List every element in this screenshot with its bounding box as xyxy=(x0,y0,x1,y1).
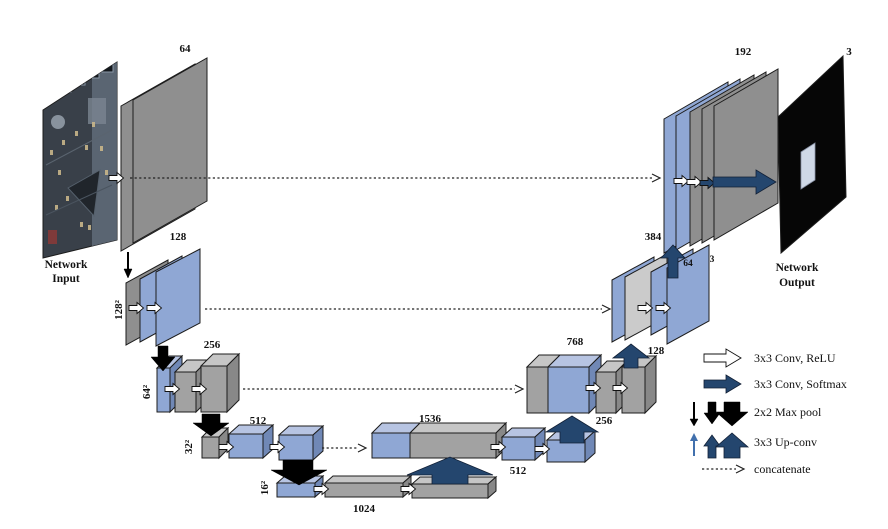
channel-label-dec-128: 128 xyxy=(648,345,665,357)
channel-label-512: 512 xyxy=(250,415,267,427)
legend-upconv-arrow-large xyxy=(716,433,748,458)
feature-box-gray xyxy=(325,483,403,497)
feature-box-gray xyxy=(202,437,219,458)
skip-arrowhead xyxy=(515,385,523,393)
feature-plane-gray xyxy=(133,58,207,243)
resolution-label-32sq: 32² xyxy=(183,439,195,454)
channel-label-192: 192 xyxy=(735,46,752,58)
feature-box-gray xyxy=(412,484,488,498)
channel-label-384: 384 xyxy=(645,231,662,243)
encoder-level1-feature-maps: 64 xyxy=(121,43,207,251)
concat-box-blue xyxy=(548,367,589,413)
feature-box-blue xyxy=(277,483,315,497)
channel-label-1536: 1536 xyxy=(419,413,442,425)
skip-arrowhead xyxy=(358,444,366,452)
legend-upconv-label: 3x3 Up-conv xyxy=(754,435,817,449)
legend-maxpool-arrow-large xyxy=(716,402,748,426)
channel-label-dec-3: 3 xyxy=(710,255,715,265)
concat-box-gray xyxy=(527,367,548,413)
channel-label-1024: 1024 xyxy=(353,503,376,515)
resolution-label-128sq: 128² xyxy=(113,299,125,320)
maxpool-arrowhead xyxy=(124,269,132,278)
pcb-connector xyxy=(74,73,85,85)
channel-label-64: 64 xyxy=(180,43,192,55)
legend-conv-relu-label: 3x3 Conv, ReLU xyxy=(754,351,836,365)
resolution-label-64sq: 64² xyxy=(141,384,153,399)
pcb-connector xyxy=(88,66,99,78)
legend-maxpool-arrowhead xyxy=(690,419,698,426)
output-channel-label: 3 xyxy=(846,46,852,58)
unet-architecture-figure: Network Input 64 128 128² 256 64² xyxy=(0,0,888,529)
channel-label-dec-512: 512 xyxy=(510,465,527,477)
pcb-red-component xyxy=(48,230,57,244)
channel-label-128: 128 xyxy=(170,231,187,243)
network-output-image: 3 Network Output xyxy=(776,46,853,289)
legend-conv-relu-arrow xyxy=(704,349,741,367)
skip-arrowhead xyxy=(652,174,660,182)
feature-box-gray xyxy=(596,372,616,413)
legend-conv-softmax-label: 3x3 Conv, Softmax xyxy=(754,377,847,391)
resolution-label-16sq: 16² xyxy=(259,480,271,495)
decoder-level1-feature-maps: 192 xyxy=(664,46,778,253)
unet-architecture-diagram: Network Input 64 128 128² 256 64² xyxy=(0,0,888,529)
pcb-capacitor xyxy=(51,115,65,129)
output-caption-line2: Output xyxy=(779,277,815,289)
input-caption-line2: Input xyxy=(52,273,80,285)
feature-box-blue xyxy=(502,437,535,460)
legend-concatenate-arrowhead xyxy=(736,465,744,473)
legend-maxpool-label: 2x2 Max pool xyxy=(754,405,822,419)
legend-concatenate-label: concatenate xyxy=(754,462,811,476)
feature-box-gray xyxy=(175,372,196,412)
channel-label-768: 768 xyxy=(567,336,584,348)
concat-box-gray xyxy=(410,433,496,458)
legend: 3x3 Conv, ReLU 3x3 Conv, Softmax 2x2 Max… xyxy=(690,349,847,476)
encoder-level3-feature-maps: 256 64² xyxy=(141,339,239,412)
concat-box-blue xyxy=(372,433,410,458)
box-top xyxy=(325,476,411,483)
channel-label-dec-256: 256 xyxy=(596,415,613,427)
feature-box-blue xyxy=(229,434,263,458)
pcb-light-region xyxy=(92,62,117,252)
input-caption-line1: Network xyxy=(45,259,88,271)
network-input-image: Network Input xyxy=(43,60,117,285)
pcb-connector xyxy=(60,80,71,92)
output-caption-line1: Network xyxy=(776,262,819,274)
channel-label-dec-64: 64 xyxy=(683,259,693,269)
channel-label-256: 256 xyxy=(204,339,221,351)
legend-upconv-arrowhead xyxy=(690,433,698,441)
decoder-level2-feature-maps: 384 64 3 xyxy=(612,231,715,344)
legend-conv-softmax-arrow xyxy=(704,375,741,393)
pcb-chip xyxy=(88,98,106,124)
skip-arrowhead xyxy=(602,305,610,313)
